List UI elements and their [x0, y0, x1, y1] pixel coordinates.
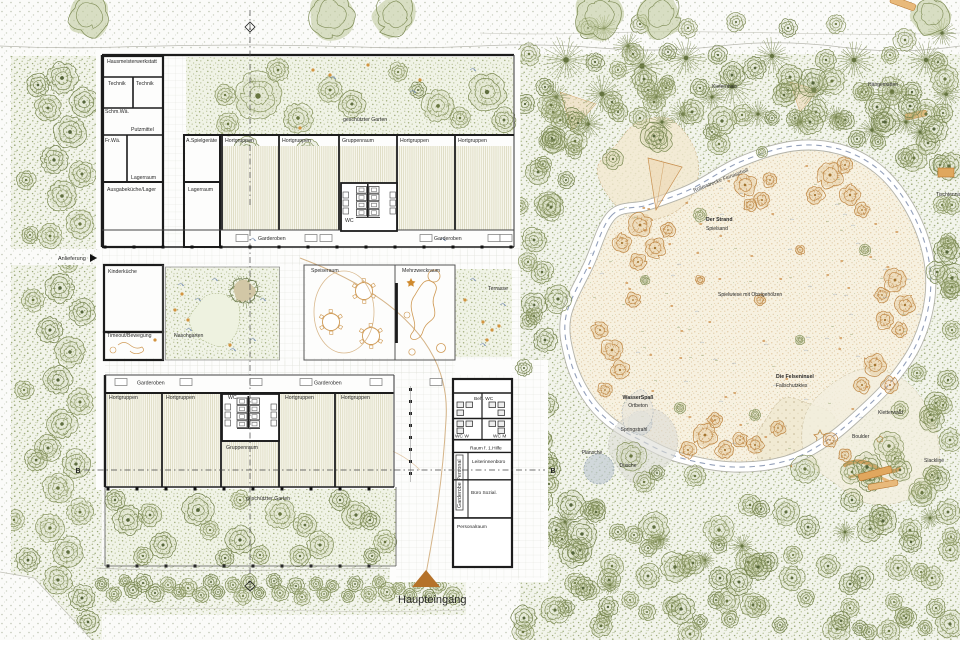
svg-text:geschützter Garten: geschützter Garten [343, 117, 387, 123]
svg-text:Hortgruppen: Hortgruppen [282, 138, 311, 144]
svg-text:Spielsand: Spielsand [706, 226, 728, 232]
svg-text:Fallschutzkies: Fallschutzkies [776, 383, 808, 389]
svg-text:Putzmittel: Putzmittel [131, 127, 154, 133]
svg-text:A: A [248, 585, 251, 590]
svg-text:Kletterwald: Kletterwald [878, 410, 903, 416]
svg-text:Slackline: Slackline [924, 458, 944, 464]
svg-text:Hängematten: Hängematten [868, 82, 898, 88]
svg-text:Dusche: Dusche [620, 463, 637, 469]
svg-text:Der Strand: Der Strand [706, 217, 733, 223]
svg-text:Lagerraum: Lagerraum [131, 175, 156, 181]
svg-text:A.Spielgeräte: A.Spielgeräte [186, 138, 217, 144]
svg-text:WC: WC [228, 395, 237, 401]
svg-text:WC W: WC W [455, 434, 469, 440]
svg-text:Lagerraum: Lagerraum [188, 187, 213, 193]
svg-text:Springstrahl: Springstrahl [621, 427, 648, 433]
svg-text:Anlieferung: Anlieferung [58, 256, 86, 262]
svg-text:Büro Sozial.: Büro Sozial. [471, 490, 497, 496]
svg-text:Beh. WC: Beh. WC [474, 396, 494, 402]
svg-text:Boulder: Boulder [852, 434, 870, 440]
svg-text:A: A [248, 27, 251, 32]
svg-text:Die Felseninsel: Die Felseninsel [776, 374, 814, 380]
svg-text:WC: WC [345, 218, 354, 224]
svg-text:WC M: WC M [493, 434, 506, 440]
svg-text:WasserSpaß: WasserSpaß [623, 395, 655, 401]
svg-text:Gruppenraum: Gruppenraum [342, 138, 374, 144]
svg-text:Plansche: Plansche [582, 450, 603, 456]
svg-text:Haupteingang: Haupteingang [398, 594, 467, 606]
svg-text:Fr.Wä.: Fr.Wä. [105, 138, 120, 144]
svg-text:geschützter Garten: geschützter Garten [246, 496, 290, 502]
svg-text:Hortgruppen: Hortgruppen [400, 138, 429, 144]
svg-text:Hortgruppen: Hortgruppen [341, 395, 370, 401]
svg-text:Technik: Technik [136, 81, 154, 87]
svg-text:Personalraum: Personalraum [457, 524, 487, 530]
svg-text:Kiefernhain: Kiefernhain [712, 84, 738, 90]
svg-text:Hortgruppen: Hortgruppen [166, 395, 195, 401]
svg-text:Speiseraum: Speiseraum [311, 268, 339, 274]
svg-text:Ausgabeküche/Lager: Ausgabeküche/Lager [107, 187, 156, 193]
svg-text:Raum f. 1.Hilfe: Raum f. 1.Hilfe [470, 446, 502, 452]
svg-text:Hausmeisterwerkstatt: Hausmeisterwerkstatt [107, 59, 157, 65]
svg-text:Garderoben: Garderoben [314, 381, 342, 387]
svg-text:Gruppenraum: Gruppenraum [226, 445, 258, 451]
svg-text:Hortgruppen: Hortgruppen [458, 138, 487, 144]
svg-text:Tischtennis: Tischtennis [936, 192, 960, 198]
svg-text:Kinderküche: Kinderküche [108, 269, 137, 275]
svg-text:Spielwiese mit Obstgehölzen: Spielwiese mit Obstgehölzen [718, 292, 782, 298]
svg-text:B: B [550, 468, 555, 475]
svg-text:Garderoben: Garderoben [434, 236, 462, 242]
svg-text:B: B [75, 468, 80, 475]
svg-text:Hortgruppen: Hortgruppen [225, 138, 254, 144]
svg-text:Hortgruppen: Hortgruppen [109, 395, 138, 401]
svg-text:Garderobe Personal: Garderobe Personal [457, 459, 463, 508]
svg-text:Technik: Technik [108, 81, 126, 87]
svg-text:Schm.Wä.: Schm.Wä. [105, 109, 129, 115]
svg-text:Naschgarten: Naschgarten [174, 333, 204, 339]
svg-text:Garderoben: Garderoben [137, 381, 165, 387]
svg-text:Hortgruppen: Hortgruppen [285, 395, 314, 401]
svg-text:Timeout/Bewegung: Timeout/Bewegung [107, 333, 152, 339]
svg-text:Garderoben: Garderoben [258, 236, 286, 242]
svg-text:Ortbeton: Ortbeton [628, 403, 648, 409]
svg-text:Leiterinnenbüro: Leiterinnenbüro [472, 459, 506, 465]
svg-text:Mehrzweckraum: Mehrzweckraum [402, 268, 440, 274]
svg-text:Terrasse: Terrasse [488, 286, 508, 292]
